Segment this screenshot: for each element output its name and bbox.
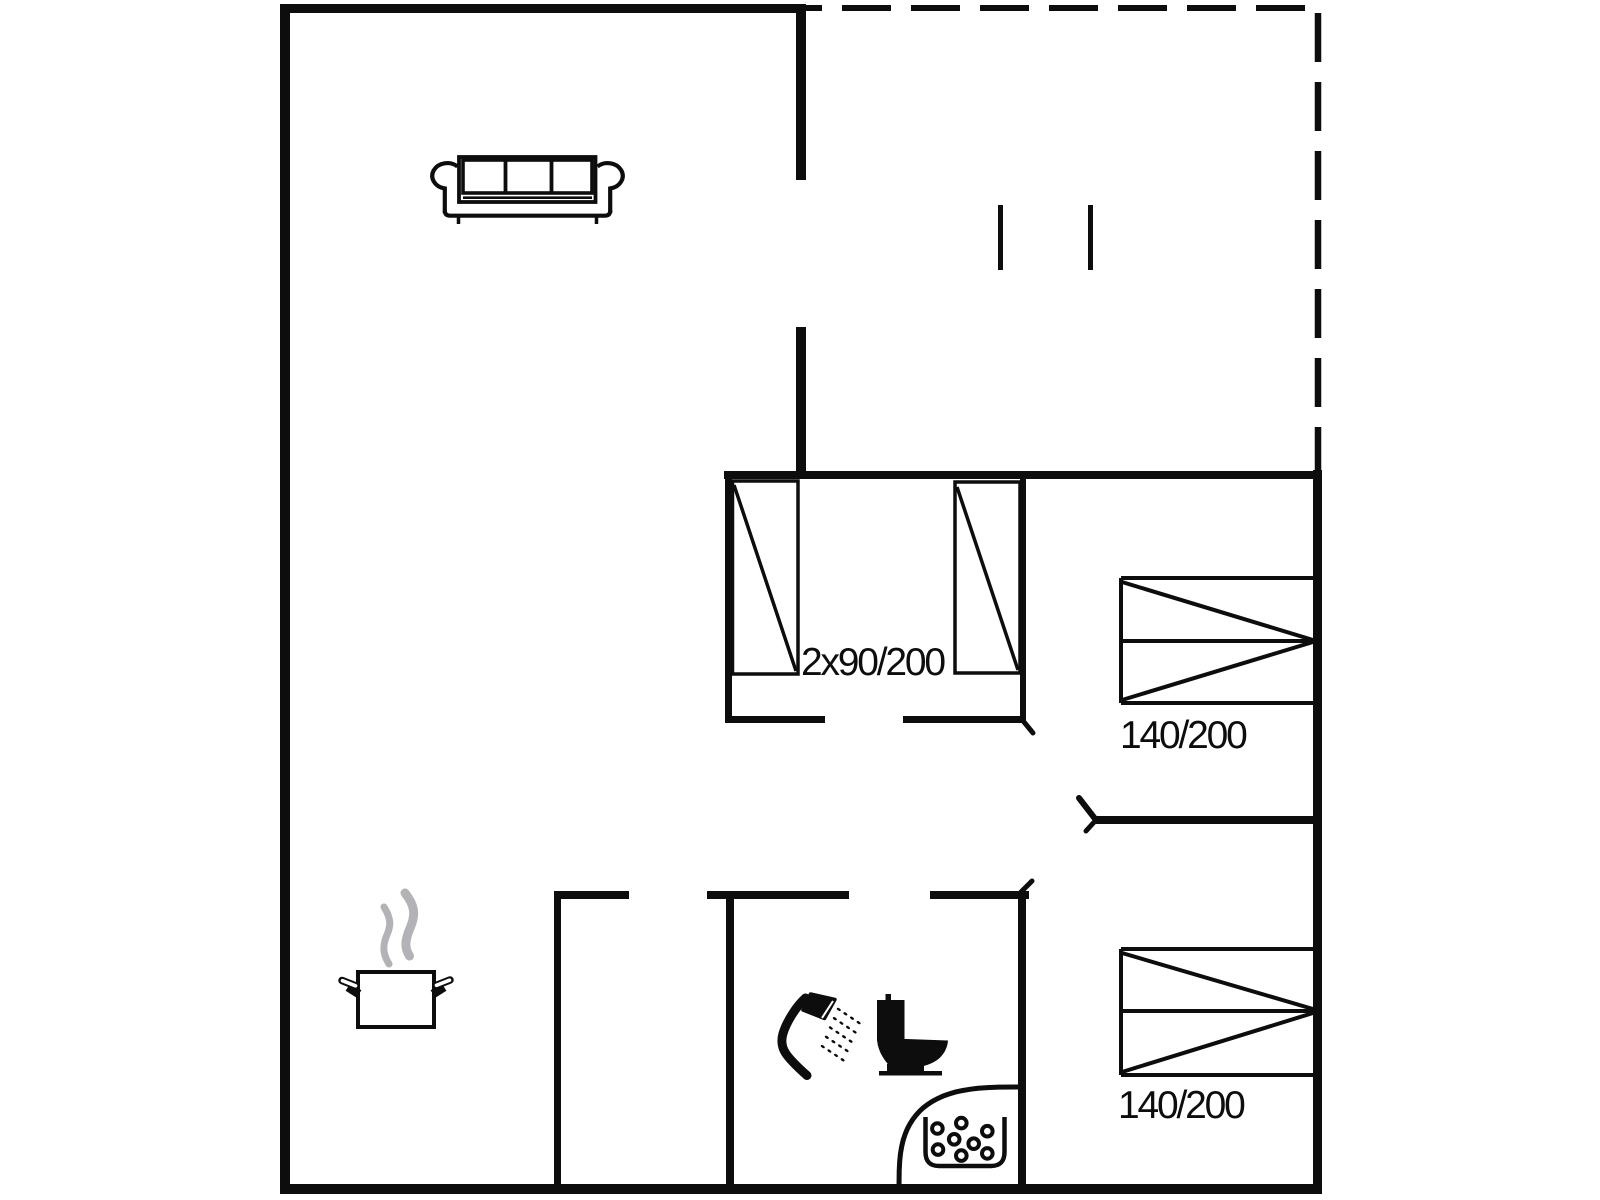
- svg-text:140/200: 140/200: [1118, 1084, 1245, 1127]
- svg-text:140/200: 140/200: [1120, 714, 1247, 757]
- svg-text:2x90/200: 2x90/200: [801, 641, 945, 684]
